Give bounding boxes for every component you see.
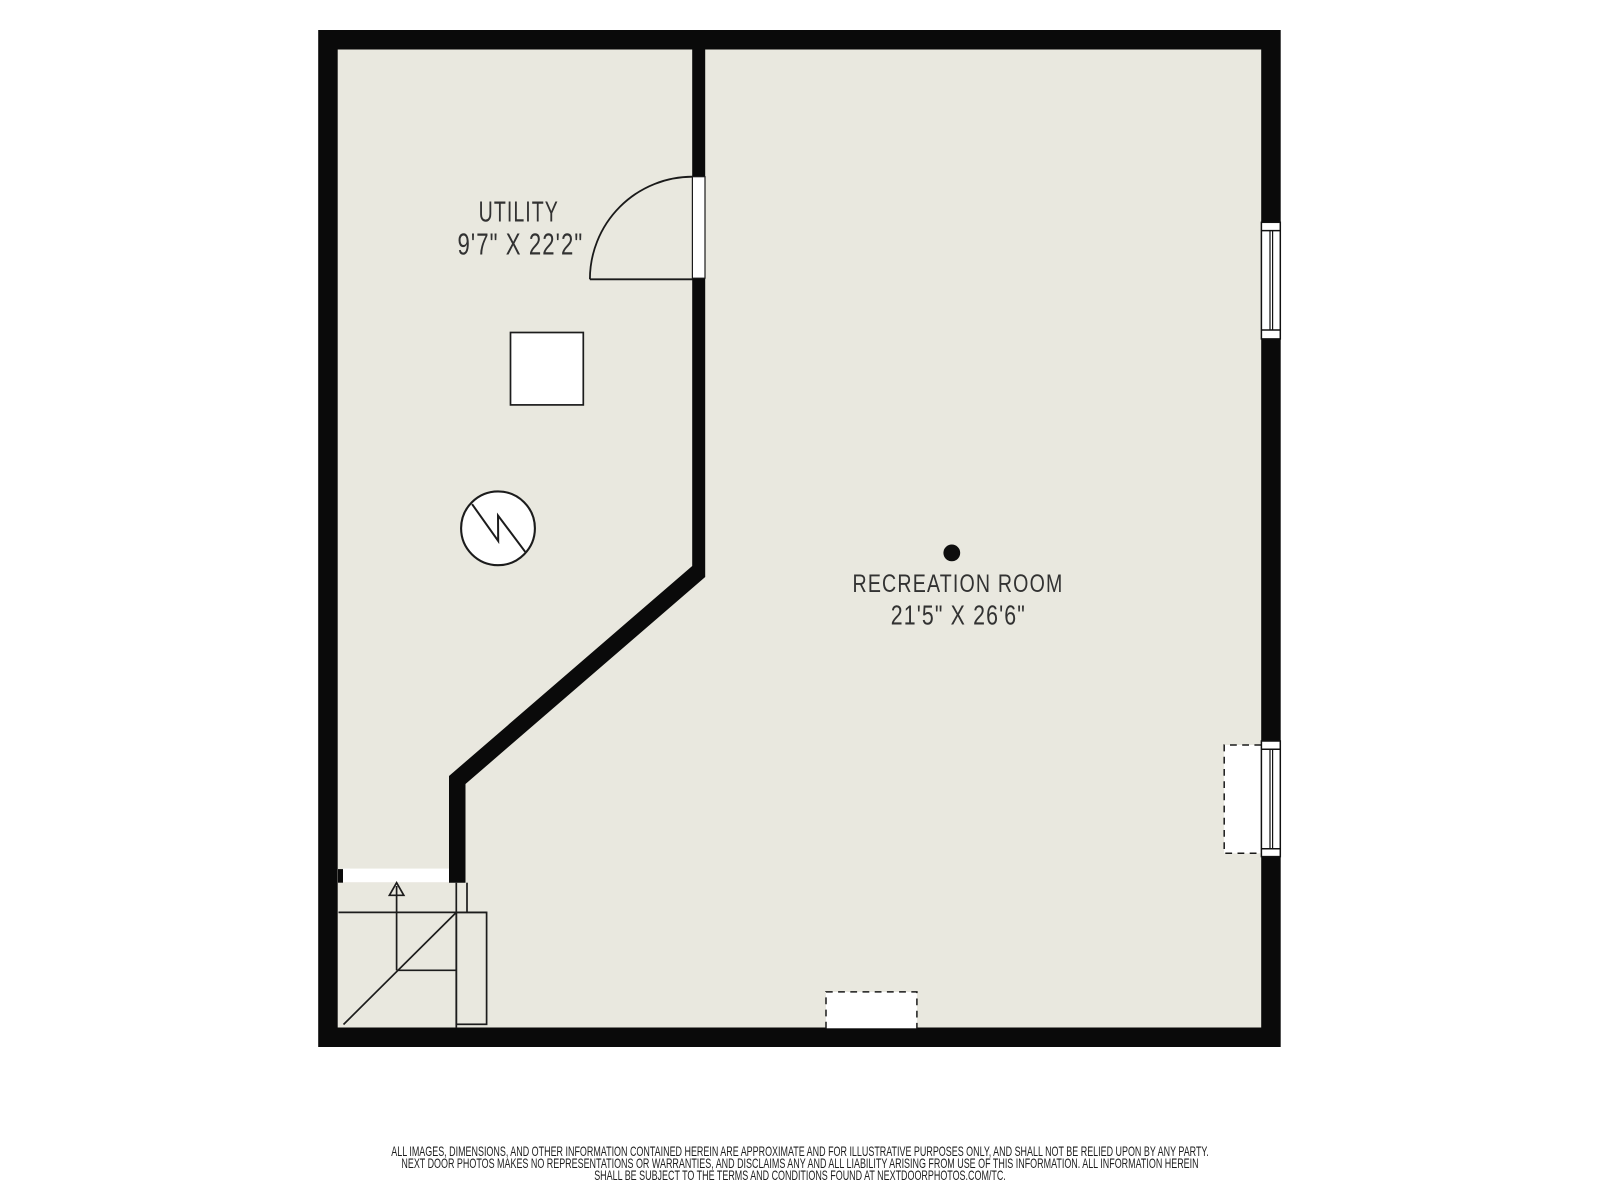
svg-text:RECREATION ROOM: RECREATION ROOM — [852, 570, 1063, 598]
svg-text:21'5" X 26'6": 21'5" X 26'6" — [891, 600, 1026, 632]
svg-text:9'7" X 22'2": 9'7" X 22'2" — [458, 227, 584, 262]
svg-text:SHALL BE SUBJECT TO THE TERMS: SHALL BE SUBJECT TO THE TERMS AND CONDIT… — [594, 1168, 1006, 1183]
svg-text:UTILITY: UTILITY — [479, 197, 559, 228]
